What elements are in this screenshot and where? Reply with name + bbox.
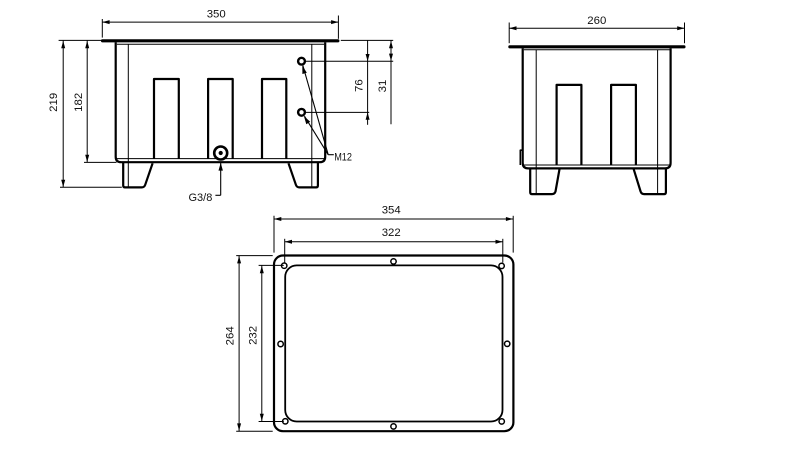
svg-text:260: 260 [587,15,606,27]
svg-text:G3/8: G3/8 [189,192,213,204]
svg-text:76: 76 [353,79,365,92]
svg-text:322: 322 [382,227,401,239]
svg-text:264: 264 [225,326,237,345]
svg-text:232: 232 [247,326,259,345]
svg-text:350: 350 [207,8,226,20]
svg-text:M12: M12 [334,151,352,163]
svg-text:31: 31 [377,80,389,93]
svg-text:219: 219 [48,93,60,112]
svg-text:354: 354 [382,204,401,216]
svg-text:182: 182 [73,93,85,112]
